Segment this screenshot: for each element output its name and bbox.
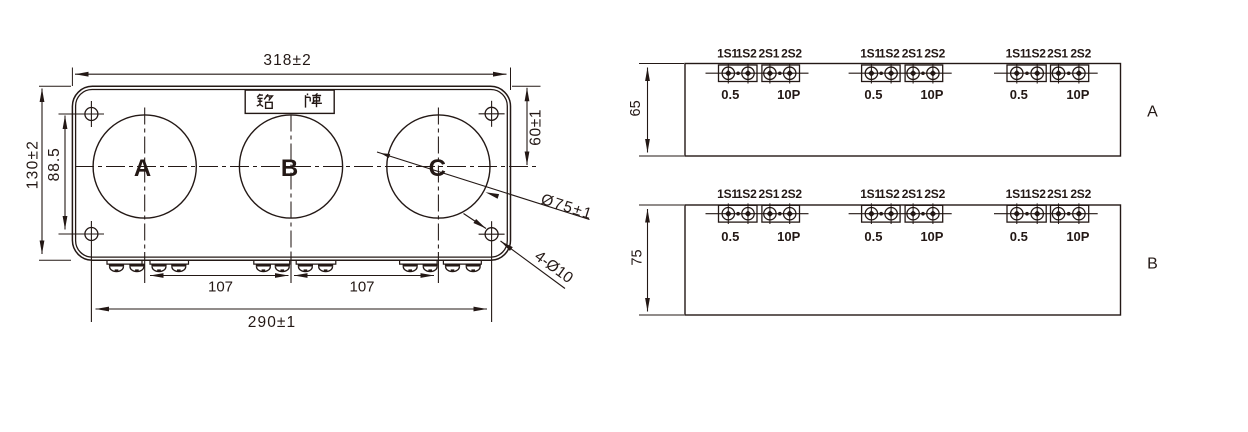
svg-text:4-Ø10: 4-Ø10 xyxy=(531,248,576,287)
svg-text:1S2: 1S2 xyxy=(1025,46,1046,60)
svg-text:10P: 10P xyxy=(1066,87,1089,102)
svg-text:318±2: 318±2 xyxy=(263,52,312,69)
svg-text:0.5: 0.5 xyxy=(721,229,739,244)
svg-text:1S1: 1S1 xyxy=(1006,187,1027,201)
svg-text:2S1: 2S1 xyxy=(1047,46,1068,60)
svg-text:65: 65 xyxy=(628,100,644,116)
svg-text:1S1: 1S1 xyxy=(1006,46,1027,60)
svg-text:1S2: 1S2 xyxy=(736,187,757,201)
svg-text:2S2: 2S2 xyxy=(1070,46,1091,60)
svg-text:0.5: 0.5 xyxy=(721,87,739,102)
svg-text:2S1: 2S1 xyxy=(759,46,780,60)
svg-text:2S1: 2S1 xyxy=(759,187,780,201)
svg-text:1S2: 1S2 xyxy=(879,187,900,201)
svg-text:0.5: 0.5 xyxy=(864,87,882,102)
svg-text:290±1: 290±1 xyxy=(248,314,297,331)
svg-text:60±1: 60±1 xyxy=(527,109,544,146)
svg-text:10P: 10P xyxy=(920,87,943,102)
svg-text:75: 75 xyxy=(630,249,646,265)
svg-text:2S2: 2S2 xyxy=(781,187,802,201)
svg-text:1S2: 1S2 xyxy=(879,46,900,60)
svg-text:0.5: 0.5 xyxy=(1010,229,1028,244)
svg-text:2S1: 2S1 xyxy=(902,187,923,201)
svg-text:10P: 10P xyxy=(777,87,800,102)
svg-text:0.5: 0.5 xyxy=(864,229,882,244)
svg-text:B: B xyxy=(281,155,298,182)
svg-text:107: 107 xyxy=(349,279,374,296)
svg-text:2S2: 2S2 xyxy=(924,46,945,60)
svg-text:A: A xyxy=(134,155,151,182)
svg-text:1S2: 1S2 xyxy=(736,46,757,60)
svg-text:2S2: 2S2 xyxy=(924,187,945,201)
svg-text:130±2: 130±2 xyxy=(24,140,41,190)
svg-text:B: B xyxy=(1147,256,1158,273)
svg-text:A: A xyxy=(1147,104,1158,121)
svg-text:10P: 10P xyxy=(1066,229,1089,244)
svg-text:88.5: 88.5 xyxy=(46,147,63,181)
svg-text:1S2: 1S2 xyxy=(1025,187,1046,201)
svg-text:2S1: 2S1 xyxy=(1047,187,1068,201)
svg-text:10P: 10P xyxy=(777,229,800,244)
svg-text:2S2: 2S2 xyxy=(1070,187,1091,201)
svg-text:0.5: 0.5 xyxy=(1010,87,1028,102)
svg-text:10P: 10P xyxy=(920,229,943,244)
svg-text:2S1: 2S1 xyxy=(902,46,923,60)
svg-text:107: 107 xyxy=(208,279,233,296)
svg-text:Ø75±1: Ø75±1 xyxy=(539,191,595,223)
svg-text:2S2: 2S2 xyxy=(781,46,802,60)
